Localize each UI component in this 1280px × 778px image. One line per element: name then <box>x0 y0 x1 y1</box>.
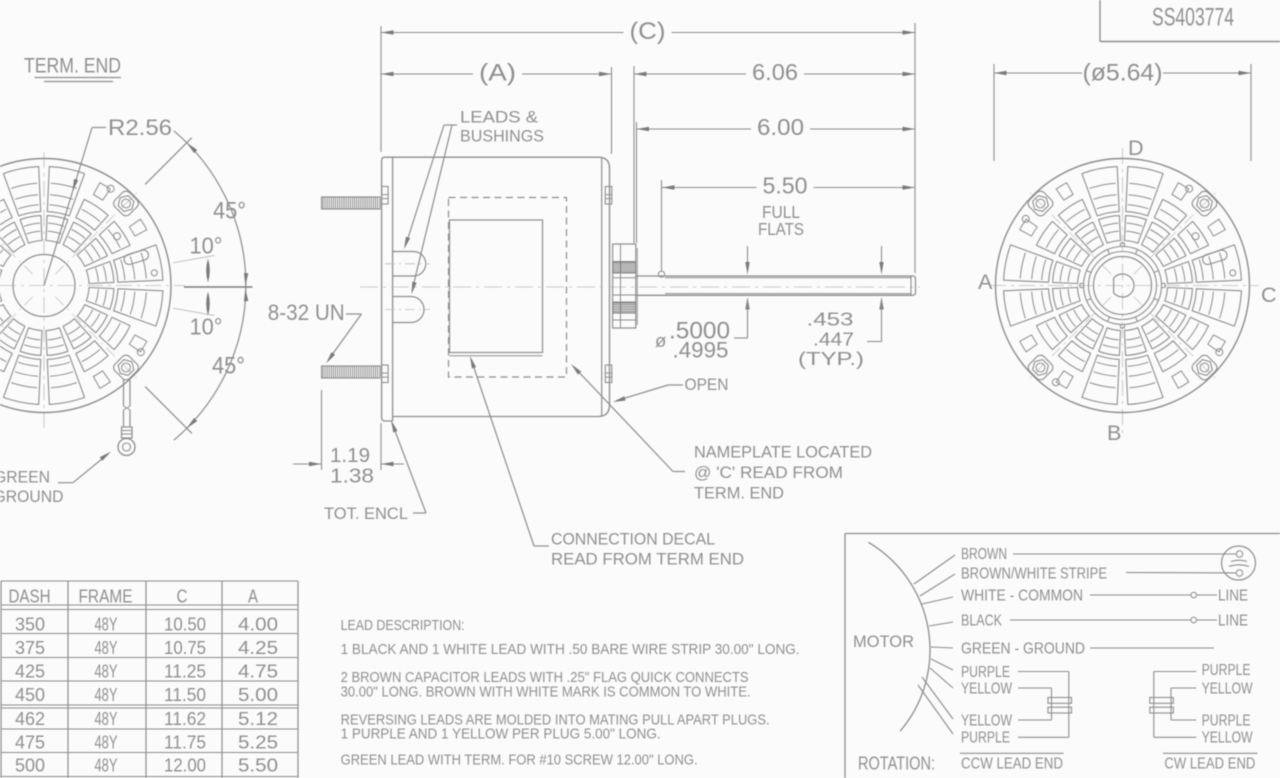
svg-text:4.25: 4.25 <box>238 637 278 658</box>
svg-text:YELLOW: YELLOW <box>961 713 1012 730</box>
svg-text:(A): (A) <box>479 60 516 86</box>
svg-text:TERM. END: TERM. END <box>694 483 784 502</box>
svg-text:GROUND: GROUND <box>0 487 64 506</box>
svg-text:BROWN/WHITE STRIPE: BROWN/WHITE STRIPE <box>961 566 1107 583</box>
svg-text:1.38: 1.38 <box>330 465 374 487</box>
svg-text:A: A <box>248 585 258 606</box>
svg-text:CONNECTION DECAL: CONNECTION DECAL <box>551 529 715 548</box>
svg-text:(C): (C) <box>630 19 666 45</box>
svg-text:BROWN: BROWN <box>961 546 1007 563</box>
svg-text:.4995: .4995 <box>673 338 729 363</box>
svg-text:11.62: 11.62 <box>164 708 206 729</box>
svg-text:LEADS &: LEADS & <box>460 108 539 127</box>
svg-text:450: 450 <box>15 684 45 705</box>
svg-text:30.00" LONG. BROWN WITH WHITE: 30.00" LONG. BROWN WITH WHITE MARK IS CO… <box>341 684 751 700</box>
svg-text:C: C <box>177 585 188 606</box>
svg-text:TERM. END: TERM. END <box>24 55 121 78</box>
svg-text:375: 375 <box>15 637 45 658</box>
svg-text:B: B <box>1107 420 1121 445</box>
svg-text:.447: .447 <box>813 329 854 350</box>
svg-text:4.75: 4.75 <box>238 661 278 682</box>
svg-text:TOT. ENCL: TOT. ENCL <box>324 504 408 523</box>
svg-text:425: 425 <box>15 661 45 682</box>
svg-text:OPEN: OPEN <box>685 375 729 394</box>
svg-text:FRAME: FRAME <box>79 585 133 606</box>
svg-text:FLATS: FLATS <box>758 219 804 239</box>
svg-text:YELLOW: YELLOW <box>1202 681 1253 698</box>
svg-text:@ 'C' READ FROM: @ 'C' READ FROM <box>694 463 843 482</box>
svg-text:PURPLE: PURPLE <box>1202 713 1251 730</box>
svg-text:YELLOW: YELLOW <box>961 681 1012 698</box>
svg-text:PURPLE: PURPLE <box>961 730 1010 747</box>
svg-text:12.00: 12.00 <box>164 755 206 776</box>
svg-text:MOTOR: MOTOR <box>853 632 914 651</box>
svg-text:PURPLE: PURPLE <box>1202 662 1251 679</box>
svg-text:A: A <box>978 269 993 294</box>
svg-text:10°: 10° <box>190 233 223 259</box>
svg-text:48Y: 48Y <box>95 731 118 752</box>
svg-text:5.00: 5.00 <box>238 684 278 705</box>
svg-text:8-32 UN: 8-32 UN <box>268 300 345 325</box>
svg-text:5.50: 5.50 <box>238 755 278 776</box>
svg-text:LEAD DESCRIPTION:: LEAD DESCRIPTION: <box>341 618 465 634</box>
svg-text:(TYP.): (TYP.) <box>798 349 864 370</box>
svg-text:LINE: LINE <box>1218 613 1248 630</box>
svg-text:.453: .453 <box>807 309 854 330</box>
svg-text:11.25: 11.25 <box>164 661 206 682</box>
svg-text:48Y: 48Y <box>95 755 118 776</box>
svg-text:48Y: 48Y <box>95 708 118 729</box>
svg-text:10°: 10° <box>190 314 223 340</box>
svg-text:LINE: LINE <box>1218 588 1248 605</box>
svg-text:ø: ø <box>655 330 666 351</box>
svg-text:11.75: 11.75 <box>164 731 206 752</box>
svg-text:48Y: 48Y <box>95 684 118 705</box>
svg-text:475: 475 <box>15 731 45 752</box>
svg-text:CCW LEAD END: CCW LEAD END <box>961 755 1063 773</box>
svg-text:1 PURPLE AND 1 YELLOW PER PLUG: 1 PURPLE AND 1 YELLOW PER PLUG 5.00" LON… <box>341 727 661 743</box>
svg-text:10.50: 10.50 <box>164 613 206 634</box>
svg-text:GREEN LEAD WITH TERM. FOR #10: GREEN LEAD WITH TERM. FOR #10 SCREW 12.0… <box>341 752 698 768</box>
svg-text:48Y: 48Y <box>95 661 118 682</box>
svg-text:11.50: 11.50 <box>164 684 206 705</box>
svg-text:5.25: 5.25 <box>238 731 278 752</box>
svg-text:(ø5.64): (ø5.64) <box>1083 61 1163 87</box>
svg-text:45°: 45° <box>212 353 245 380</box>
svg-text:5.12: 5.12 <box>238 708 278 729</box>
svg-text:ROTATION:: ROTATION: <box>858 754 935 774</box>
svg-text:BUSHINGS: BUSHINGS <box>460 127 544 146</box>
svg-text:10.75: 10.75 <box>164 637 206 658</box>
svg-text:4.00: 4.00 <box>238 613 278 634</box>
svg-text:YELLOW: YELLOW <box>1202 730 1253 747</box>
svg-text:C: C <box>1261 282 1277 307</box>
svg-text:462: 462 <box>15 708 45 729</box>
svg-text:1.19: 1.19 <box>330 445 370 467</box>
svg-text:500: 500 <box>15 755 45 776</box>
svg-text:D: D <box>1128 135 1144 160</box>
svg-text:PURPLE: PURPLE <box>961 664 1010 681</box>
svg-text:1 BLACK AND 1 WHITE LEAD WITH: 1 BLACK AND 1 WHITE LEAD WITH .50 BARE W… <box>341 642 800 658</box>
svg-text:350: 350 <box>15 613 45 634</box>
svg-text:48Y: 48Y <box>95 637 118 658</box>
svg-text:GREEN - GROUND: GREEN - GROUND <box>961 641 1085 658</box>
svg-text:45°: 45° <box>213 198 246 225</box>
svg-text:48Y: 48Y <box>95 613 118 634</box>
svg-text:SS403774: SS403774 <box>1152 4 1234 32</box>
svg-text:READ FROM TERM END: READ FROM TERM END <box>551 550 744 569</box>
svg-text:GREEN: GREEN <box>0 468 50 487</box>
svg-text:WHITE - COMMON: WHITE - COMMON <box>961 588 1083 605</box>
svg-text:R2.56: R2.56 <box>108 115 172 140</box>
svg-text:6.06: 6.06 <box>752 59 798 85</box>
svg-text:BLACK: BLACK <box>961 613 1003 630</box>
svg-text:NAMEPLATE LOCATED: NAMEPLATE LOCATED <box>694 443 872 462</box>
svg-text:5.50: 5.50 <box>763 173 808 199</box>
svg-text:DASH: DASH <box>9 585 51 606</box>
svg-text:6.00: 6.00 <box>757 114 804 140</box>
svg-text:CW LEAD END: CW LEAD END <box>1164 755 1255 773</box>
